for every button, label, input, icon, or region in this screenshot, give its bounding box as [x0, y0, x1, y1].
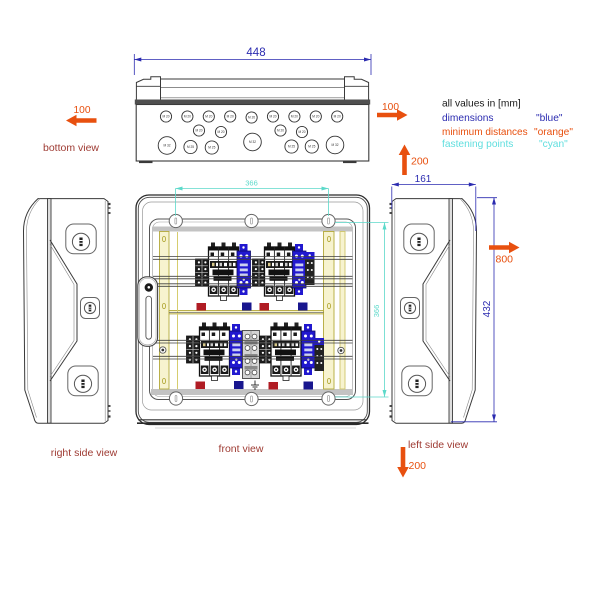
svg-text:all values in [mm]: all values in [mm]: [442, 99, 521, 110]
svg-text:M 20: M 20: [195, 129, 202, 133]
svg-text:M 25: M 25: [187, 145, 194, 149]
svg-text:100: 100: [74, 105, 91, 116]
svg-text:M 20: M 20: [291, 115, 298, 119]
svg-text:M 25: M 25: [208, 146, 215, 150]
svg-text:left side view: left side view: [408, 439, 469, 451]
svg-text:161: 161: [415, 174, 432, 185]
svg-text:M 32: M 32: [331, 143, 338, 147]
svg-text:"cyan": "cyan": [539, 139, 568, 150]
svg-text:M 20: M 20: [162, 115, 169, 119]
svg-text:front view: front view: [219, 443, 264, 455]
svg-text:800: 800: [496, 254, 514, 266]
svg-text:M 20: M 20: [217, 130, 224, 134]
svg-text:366: 366: [372, 305, 381, 318]
svg-text:right side view: right side view: [51, 447, 118, 459]
svg-text:"blue": "blue": [536, 113, 563, 124]
svg-text:M 25: M 25: [308, 145, 315, 149]
svg-text:366: 366: [245, 179, 258, 188]
svg-text:fastening points: fastening points: [442, 139, 513, 150]
svg-text:minimum distances: minimum distances: [442, 127, 528, 138]
svg-text:M 20: M 20: [298, 130, 305, 134]
svg-text:M 32: M 32: [163, 144, 170, 148]
svg-text:M 20: M 20: [269, 115, 276, 119]
svg-text:bottom view: bottom view: [43, 142, 99, 154]
svg-text:dimensions: dimensions: [442, 113, 494, 124]
svg-text:M 32: M 32: [249, 140, 256, 144]
svg-text:M 20: M 20: [227, 115, 234, 119]
svg-text:M 20: M 20: [184, 115, 191, 119]
svg-text:200: 200: [411, 156, 429, 168]
svg-text:M 20: M 20: [205, 115, 212, 119]
svg-text:100: 100: [382, 102, 399, 113]
svg-text:M 20: M 20: [334, 115, 341, 119]
svg-text:200: 200: [409, 460, 427, 472]
svg-text:M 20: M 20: [277, 129, 284, 133]
svg-text:M 20: M 20: [248, 116, 255, 120]
svg-text:M 25: M 25: [288, 145, 295, 149]
svg-text:432: 432: [482, 300, 493, 317]
svg-text:448: 448: [246, 47, 265, 59]
svg-text:"orange": "orange": [534, 127, 573, 138]
svg-text:M 20: M 20: [312, 115, 319, 119]
